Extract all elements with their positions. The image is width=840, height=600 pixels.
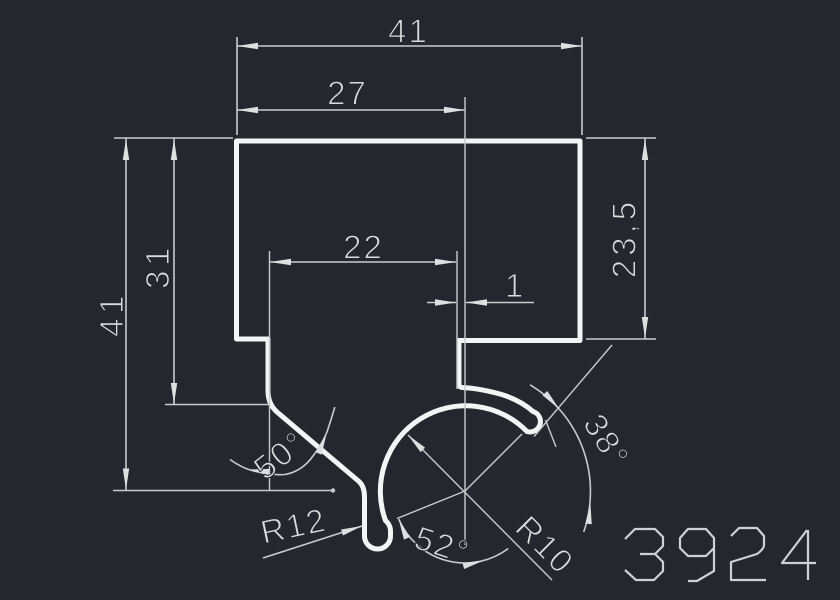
svg-text:27: 27 xyxy=(327,75,368,112)
svg-text:41: 41 xyxy=(388,13,429,50)
svg-text:38°: 38° xyxy=(576,407,637,474)
svg-text:31: 31 xyxy=(139,243,176,289)
svg-text:R12: R12 xyxy=(257,501,330,551)
svg-text:R10: R10 xyxy=(509,508,582,581)
svg-text:23,5: 23,5 xyxy=(606,198,643,278)
svg-text:1: 1 xyxy=(505,267,523,304)
svg-text:41: 41 xyxy=(93,291,130,337)
svg-text:22: 22 xyxy=(343,229,384,266)
